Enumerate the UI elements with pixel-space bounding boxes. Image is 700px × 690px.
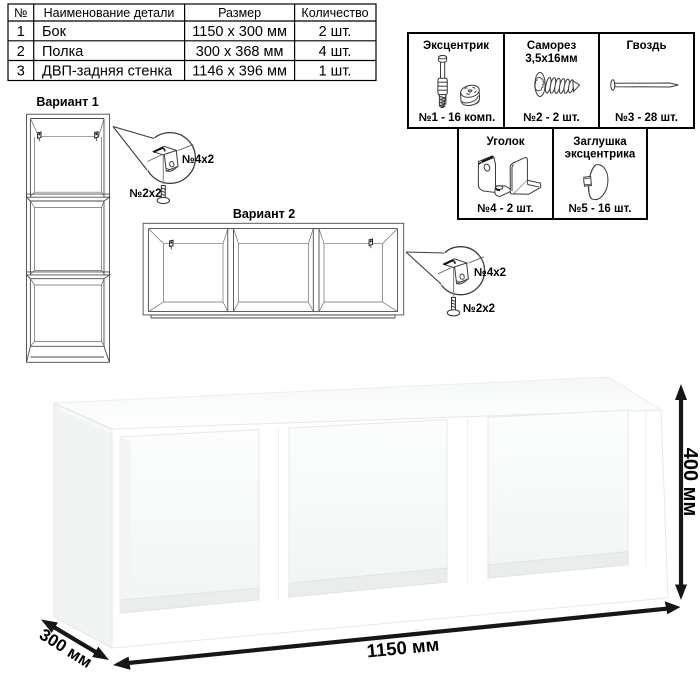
svg-text:Размер: Размер xyxy=(218,6,261,20)
svg-text:Гвоздь: Гвоздь xyxy=(626,40,666,52)
svg-text:№3 - 28 шт.: №3 - 28 шт. xyxy=(615,112,678,124)
svg-text:2: 2 xyxy=(17,44,25,60)
svg-text:№2х2: №2х2 xyxy=(130,188,162,200)
svg-text:400 мм: 400 мм xyxy=(679,448,700,517)
svg-text:эксцентрика: эксцентрика xyxy=(565,149,636,161)
svg-text:№: № xyxy=(14,6,27,20)
svg-text:№1 - 16 комп.: №1 - 16 комп. xyxy=(419,112,496,124)
svg-text:Количество: Количество xyxy=(301,6,368,20)
svg-text:№4х2: №4х2 xyxy=(182,154,214,166)
svg-text:1146 х 396 мм: 1146 х 396 мм xyxy=(192,64,287,80)
svg-text:3,5х16мм: 3,5х16мм xyxy=(525,53,577,65)
svg-text:№2х2: №2х2 xyxy=(463,303,495,315)
svg-text:4 шт.: 4 шт. xyxy=(319,44,352,60)
svg-text:Вариант 1: Вариант 1 xyxy=(36,95,98,109)
svg-text:Эксцентрик: Эксцентрик xyxy=(423,40,489,52)
svg-text:Саморез: Саморез xyxy=(527,40,577,52)
svg-text:Уголок: Уголок xyxy=(486,136,524,148)
svg-text:Полка: Полка xyxy=(42,44,84,60)
svg-text:Бок: Бок xyxy=(42,24,67,40)
svg-text:300 х 368 мм: 300 х 368 мм xyxy=(196,44,284,60)
svg-text:3: 3 xyxy=(17,64,25,80)
svg-text:Наименование детали: Наименование детали xyxy=(44,6,175,20)
svg-text:1: 1 xyxy=(17,24,25,40)
svg-text:ДВП-задняя стенка: ДВП-задняя стенка xyxy=(42,64,173,80)
svg-text:№4х2: №4х2 xyxy=(474,267,506,279)
svg-text:1150 х 300 мм: 1150 х 300 мм xyxy=(192,24,287,40)
svg-text:№2 - 2 шт.: №2 - 2 шт. xyxy=(523,112,579,124)
svg-text:1 шт.: 1 шт. xyxy=(319,64,352,80)
svg-text:№5 - 16 шт.: №5 - 16 шт. xyxy=(569,203,632,215)
svg-text:2 шт.: 2 шт. xyxy=(319,24,352,40)
svg-text:Заглушка: Заглушка xyxy=(573,136,627,148)
svg-text:Вариант 2: Вариант 2 xyxy=(233,207,295,221)
svg-text:№4 - 2 шт.: №4 - 2 шт. xyxy=(477,203,533,215)
